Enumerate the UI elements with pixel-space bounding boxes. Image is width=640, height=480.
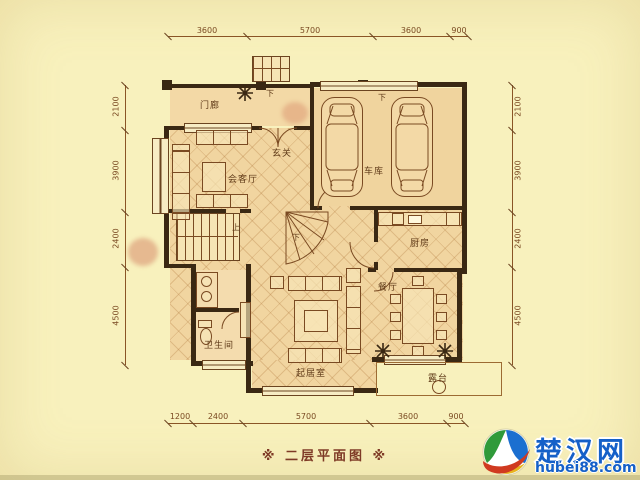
dim-line-bottom — [168, 423, 465, 424]
sofa-top — [288, 276, 342, 291]
side-table — [346, 268, 361, 283]
chair — [412, 276, 424, 286]
kitchen-door-arc — [350, 240, 376, 268]
dim-top-2: 3600 — [391, 26, 431, 35]
winder-staircase — [284, 210, 330, 266]
plant-icon — [374, 342, 392, 360]
sofa-bottom — [288, 348, 342, 363]
wall-garage-left — [310, 84, 314, 210]
porch-column — [162, 80, 172, 90]
chair — [390, 312, 401, 322]
dim-bottom-4: 900 — [436, 412, 476, 421]
sofa-arm — [172, 144, 190, 151]
chair — [436, 294, 447, 304]
room-label-kitchen: 厨房 — [410, 236, 430, 249]
room-label-porch: 门廊 — [200, 98, 220, 111]
kitchen-label-box — [408, 215, 422, 224]
annotation-down-stairs: 下 — [292, 232, 300, 243]
paper-stain — [128, 238, 158, 266]
dim-bottom-0: 1200 — [160, 412, 200, 421]
dim-bottom-2: 5700 — [286, 412, 326, 421]
globe-logo-icon — [481, 427, 531, 477]
side-table — [270, 276, 284, 289]
dim-top-0: 3600 — [187, 26, 227, 35]
car-icon — [390, 96, 434, 198]
dim-left-2: 2400 — [112, 219, 121, 259]
dim-right-2: 2400 — [514, 219, 523, 259]
annotation-down-garage: 下 — [378, 92, 386, 103]
sofa-bottom — [196, 194, 248, 208]
wall-cabinet — [240, 302, 251, 338]
room-label-foyer: 玄关 — [272, 146, 292, 159]
dim-right-1: 3900 — [514, 151, 523, 191]
plant-icon — [436, 342, 454, 360]
chair — [390, 330, 401, 340]
bathroom-door-arc — [222, 312, 240, 330]
paper-stain — [282, 102, 308, 124]
entry-steps-rail — [252, 68, 290, 69]
room-label-living: 起居室 — [296, 366, 326, 379]
chair — [412, 346, 424, 356]
dim-left-3: 4500 — [112, 296, 121, 336]
coffee-table — [202, 162, 226, 192]
fridge — [392, 213, 404, 225]
toilet-tank — [198, 320, 212, 328]
window-living-bottom — [262, 386, 354, 396]
stair-rail — [178, 236, 238, 237]
dim-top-3: 900 — [439, 26, 479, 35]
garage-door — [320, 81, 418, 91]
window-bathroom-bottom — [202, 360, 246, 370]
wall-right-lower — [457, 270, 462, 362]
wall-right-upper — [462, 82, 467, 274]
chair — [436, 330, 447, 340]
basin — [201, 276, 212, 287]
basin — [201, 291, 212, 302]
dim-bottom-3: 3600 — [388, 412, 428, 421]
wall-dining-top — [394, 268, 462, 272]
plant-icon — [236, 84, 254, 102]
dim-bottom-1: 2400 — [198, 412, 238, 421]
living-table — [304, 310, 328, 332]
room-label-garage: 车库 — [364, 164, 384, 177]
annotation-up-stairs: 上 — [232, 222, 240, 233]
dim-left-1: 3900 — [112, 151, 121, 191]
dim-left-0: 2100 — [112, 87, 121, 127]
floorplan-page: 门廊 玄关 会客厅 车库 厨房 餐厅 卫生间 起居室 露台 下 下 上 下 36… — [0, 0, 640, 480]
car-icon — [320, 96, 364, 198]
sofa-left — [172, 151, 190, 213]
chair — [390, 294, 401, 304]
straight-staircase — [176, 213, 240, 261]
kitchen-sink — [446, 212, 460, 226]
dim-top-1: 5700 — [290, 26, 330, 35]
wall-garage-bottom-b — [350, 206, 467, 210]
chair — [436, 312, 447, 322]
room-label-bathroom: 卫生间 — [204, 338, 234, 351]
sofa-top — [196, 130, 248, 145]
bay-window-left — [152, 138, 169, 214]
room-label-dining: 餐厅 — [378, 280, 398, 293]
entry-steps — [252, 56, 290, 82]
dining-table — [402, 288, 434, 344]
room-label-terrace: 露台 — [428, 371, 448, 384]
sofa-right — [346, 286, 361, 354]
wall-reception-bottom-b — [240, 209, 251, 213]
dim-right-0: 2100 — [514, 87, 523, 127]
sofa-arm — [172, 213, 190, 220]
dim-right-3: 4500 — [514, 296, 523, 336]
dim-line-top — [168, 36, 468, 37]
room-label-reception: 会客厅 — [228, 172, 258, 185]
dim-line-left — [125, 85, 126, 365]
plan-caption: ※ 二层平面图 ※ — [240, 445, 410, 464]
annotation-down-entry: 下 — [266, 88, 274, 99]
watermark-site-url[interactable]: hubei88.com — [535, 460, 637, 476]
